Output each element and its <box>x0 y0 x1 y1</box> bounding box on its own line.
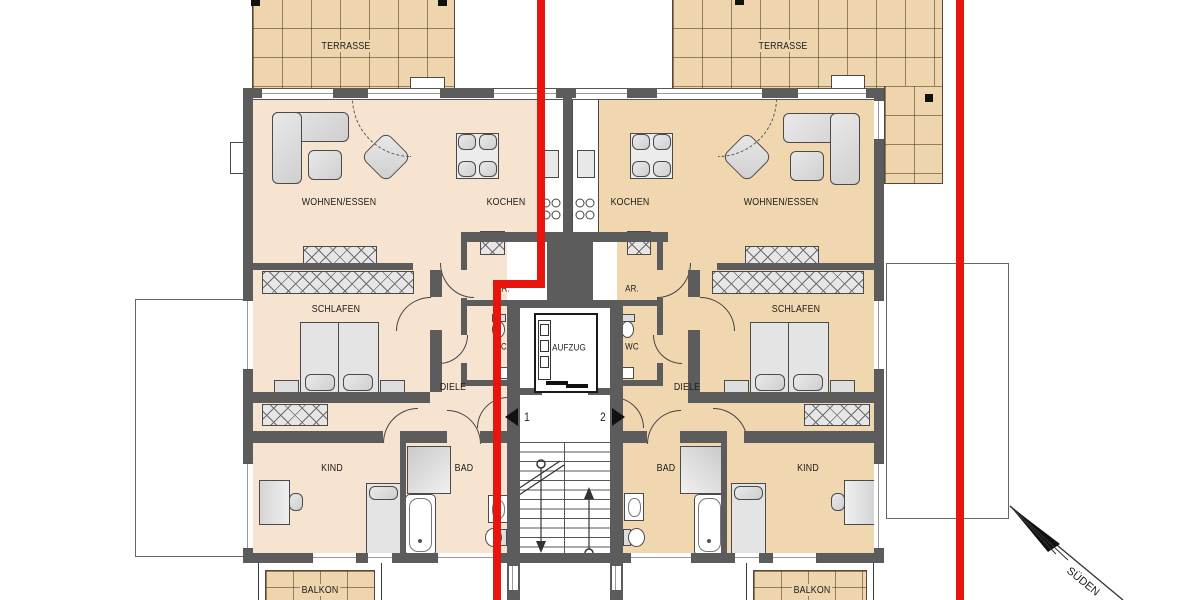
dining-chair <box>458 161 476 177</box>
ottoman-left <box>308 150 342 180</box>
terrace-post <box>925 94 933 102</box>
room-label-wc-right: WC <box>625 342 639 353</box>
room-label-schlafen-right: SCHLAFEN <box>772 303 820 315</box>
window-bad-left <box>437 553 499 563</box>
label-unit-1: 1 <box>524 410 530 424</box>
dining-chair <box>479 134 497 150</box>
window-right-kind <box>874 463 884 549</box>
room-label-balkon-left: BALKON <box>300 584 340 596</box>
terrace-post <box>735 0 744 5</box>
bathroom-sink-right <box>624 493 644 521</box>
window-left-schlafen <box>243 300 253 370</box>
room-label-diele-right: DIELE <box>674 381 700 393</box>
wall-ar-wc-left <box>461 242 467 270</box>
window-bottom <box>368 553 392 563</box>
wardrobe-right <box>712 271 864 294</box>
pillow <box>343 374 373 391</box>
section-line-1-upper <box>537 0 545 288</box>
toilet-right <box>623 527 645 547</box>
desk-chair-right <box>831 493 845 511</box>
pillow <box>793 374 823 391</box>
bathtub-left <box>405 494 436 556</box>
wall-schlafen-diele-right <box>688 270 700 297</box>
elevator-door <box>566 384 588 388</box>
kitchen-stove-right <box>574 196 595 222</box>
dining-chair <box>632 134 650 150</box>
room-label-bad-left: BAD <box>455 462 474 474</box>
terrace-post <box>251 0 260 6</box>
pillow <box>755 374 785 391</box>
wardrobe-left <box>262 271 414 294</box>
desk-left <box>259 480 290 525</box>
room-label-kochen-left: KOCHEN <box>487 196 526 208</box>
adjacent-structure-outline-right <box>886 263 1009 519</box>
room-label-wohnen-left: WOHNEN/ESSEN <box>302 196 377 208</box>
vanity-right <box>680 446 724 494</box>
room-label-balkon-right: BALKON <box>792 584 832 596</box>
wall-segment <box>627 88 657 98</box>
dining-chair <box>479 161 497 177</box>
kitchen-sink-right <box>577 150 595 178</box>
room-label-terrasse-left: TERRASSE <box>320 40 372 52</box>
label-unit-2: 2 <box>600 410 606 424</box>
desk-right <box>844 480 875 525</box>
door-marker-unit1 <box>505 408 518 426</box>
wall-segment <box>333 88 368 98</box>
desk-chair-left <box>289 493 303 511</box>
vanity-left <box>407 446 451 494</box>
hall-wardrobe-right <box>804 404 870 426</box>
window-stairwell-left <box>509 566 518 590</box>
ottoman-right <box>790 151 824 181</box>
room-label-kochen-right: KOCHEN <box>611 196 650 208</box>
wall-kitchen-divider <box>563 98 572 232</box>
wall-living-schlafen-left <box>253 263 413 270</box>
room-label-terrasse-right: TERRASSE <box>757 40 809 52</box>
duct-block <box>547 232 593 302</box>
window-left-kind <box>243 463 253 549</box>
wall-kind-top-right <box>744 431 874 443</box>
wall-bad-top-left <box>400 431 447 443</box>
door-marker-unit2 <box>612 408 625 426</box>
wall-kitchen-bottom-right <box>572 232 668 242</box>
stair-arrows <box>505 435 625 600</box>
sofa-left <box>272 112 302 184</box>
room-label-wohnen-right: WOHNEN/ESSEN <box>744 196 819 208</box>
section-line-1-lower <box>493 280 501 600</box>
label-aufzug: AUFZUG <box>552 343 586 354</box>
wall-elevator-top <box>507 300 623 308</box>
wall-ar-wc-right <box>657 242 663 270</box>
elevator-door <box>546 381 568 385</box>
wall-wc-bottom-right <box>617 380 663 386</box>
south-compass-arrow: SÜDEN <box>998 492 1168 600</box>
dining-chair <box>632 161 650 177</box>
wall-segment <box>762 88 798 98</box>
floor-plan-canvas: TERRASSE TERRASSE BALKON BALKON <box>0 0 1200 600</box>
wall-kind-bad-left <box>400 443 406 553</box>
room-label-kind-left: KIND <box>321 462 343 474</box>
room-label-diele-left: DIELE <box>440 381 466 393</box>
wall-core-right <box>610 300 623 600</box>
room-label-kind-right: KIND <box>797 462 819 474</box>
wall-kitchen-bottom-left <box>461 232 564 242</box>
hall-wardrobe-left <box>262 404 328 426</box>
dining-chair <box>653 161 671 177</box>
sideboard-left <box>303 246 377 264</box>
bed-divider <box>338 322 339 395</box>
window-stairwell-right <box>612 566 621 590</box>
pillow <box>369 486 398 500</box>
balcony-door-left <box>312 553 357 563</box>
window-right-living <box>874 100 884 140</box>
sofa-right <box>830 113 860 185</box>
room-label-ar-right: AR. <box>625 284 639 295</box>
wall-kind-top-left <box>253 431 383 443</box>
wall-bad-top-right <box>680 431 727 443</box>
window-bottom <box>735 553 759 563</box>
sideboard-right <box>745 246 819 264</box>
elevator-machine <box>538 320 551 380</box>
room-label-schlafen-left: SCHLAFEN <box>312 303 360 315</box>
pillow <box>305 374 335 391</box>
pillow <box>734 486 763 500</box>
window-right-schlafen <box>874 300 884 370</box>
wall-kind-bad-right <box>721 443 727 553</box>
dining-chair <box>653 134 671 150</box>
wall-schlafen-bottom-right <box>688 392 874 403</box>
adjacent-structure-outline-left <box>135 299 245 557</box>
wall-living-schlafen-right <box>717 263 874 270</box>
label-sueden: SÜDEN <box>1064 565 1102 599</box>
wall-segment <box>440 88 494 98</box>
section-line-2 <box>956 0 964 600</box>
room-label-bad-right: BAD <box>657 462 676 474</box>
wall-wc-top-right <box>617 300 663 306</box>
wall-schlafen-diele-left <box>430 270 442 297</box>
bed-divider <box>788 322 789 395</box>
terrace-post <box>438 0 447 6</box>
window-bad-right <box>630 553 692 563</box>
terrace-right-side <box>884 86 943 184</box>
wall-schlafen-bottom-left <box>253 392 430 403</box>
balcony-door-right <box>772 553 817 563</box>
dining-chair <box>458 134 476 150</box>
wall-segment <box>556 88 576 98</box>
wall-core-left <box>507 300 520 600</box>
